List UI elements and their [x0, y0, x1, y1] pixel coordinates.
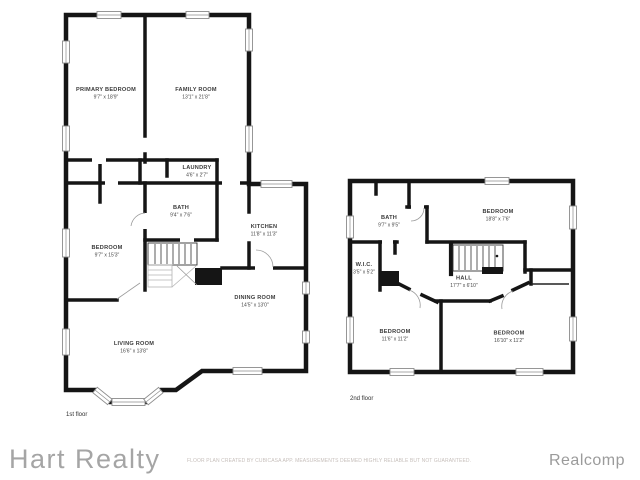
room-label-bedroom-right: BEDROOM: [494, 331, 525, 337]
room-dims-living-room: 16'6" x 13'8": [120, 349, 148, 355]
room-label-wic: W.I.C.: [356, 262, 373, 268]
room-label-dining-room: DINING ROOM: [234, 295, 275, 301]
chimney-block-2: [381, 271, 399, 286]
room-label-bath-2: BATH: [381, 215, 397, 221]
chimney-block: [195, 268, 222, 285]
room-dims-hall: 17'7" x 6'10": [450, 283, 478, 289]
room-dims-wic: 3'5" x 5'2": [353, 270, 375, 276]
room-dims-laundry: 4'6" x 2'7": [186, 173, 208, 179]
room-label-family-room: FAMILY ROOM: [175, 87, 217, 93]
room-dims-bath-1: 9'4" x 7'6": [170, 213, 192, 219]
room-label-bedroom-left: BEDROOM: [380, 329, 411, 335]
second-floor-plan: BATH 9'7" x 9'5" BEDROOM 18'8" x 7'6" W.…: [347, 178, 577, 403]
floor-plan-page: PRIMARY BEDROOM 9'7" x 18'9" FAMILY ROOM…: [0, 0, 640, 480]
room-label-bedroom-upper: BEDROOM: [483, 209, 514, 215]
disclaimer-text: FLOOR PLAN CREATED BY CUBICASA APP. MEAS…: [187, 458, 471, 464]
room-label-living-room: LIVING ROOM: [114, 341, 154, 347]
room-label-primary-bedroom: PRIMARY BEDROOM: [76, 87, 136, 93]
room-dims-bedroom-right: 16'10" x 11'2": [494, 338, 524, 344]
room-dims-bedroom-left: 11'6" x 11'2": [382, 337, 409, 343]
room-dims-dining-room: 14'5" x 13'0": [241, 303, 269, 309]
first-floor-plan: PRIMARY BEDROOM 9'7" x 18'9" FAMILY ROOM…: [63, 12, 310, 419]
room-dims-primary-bedroom: 9'7" x 18'9": [94, 95, 119, 101]
first-floor-stairs: [148, 243, 197, 287]
room-dims-family-room: 13'1" x 21'8": [182, 95, 210, 101]
room-dims-bedroom-1f: 9'7" x 15'3": [95, 253, 120, 259]
room-label-kitchen: KITCHEN: [251, 224, 278, 230]
room-dims-bedroom-upper: 18'8" x 7'6": [486, 217, 511, 223]
room-label-laundry: LAUNDRY: [183, 165, 212, 171]
second-floor-stairs: [453, 245, 503, 274]
brand-logo-text: Hart Realty: [9, 444, 161, 475]
floor-label-1st: 1st floor: [66, 412, 87, 418]
attribution-text: Realcomp: [549, 452, 625, 470]
room-label-hall: HALL: [456, 276, 472, 282]
room-dims-kitchen: 11'8" x 11'3": [251, 232, 278, 238]
room-dims-bath-2: 9'7" x 9'5": [378, 223, 400, 229]
floor-label-2nd: 2nd floor: [350, 396, 373, 402]
room-label-bedroom-1f: BEDROOM: [92, 245, 123, 251]
room-label-bath-1: BATH: [173, 205, 189, 211]
floor-plan-svg: PRIMARY BEDROOM 9'7" x 18'9" FAMILY ROOM…: [0, 0, 640, 480]
